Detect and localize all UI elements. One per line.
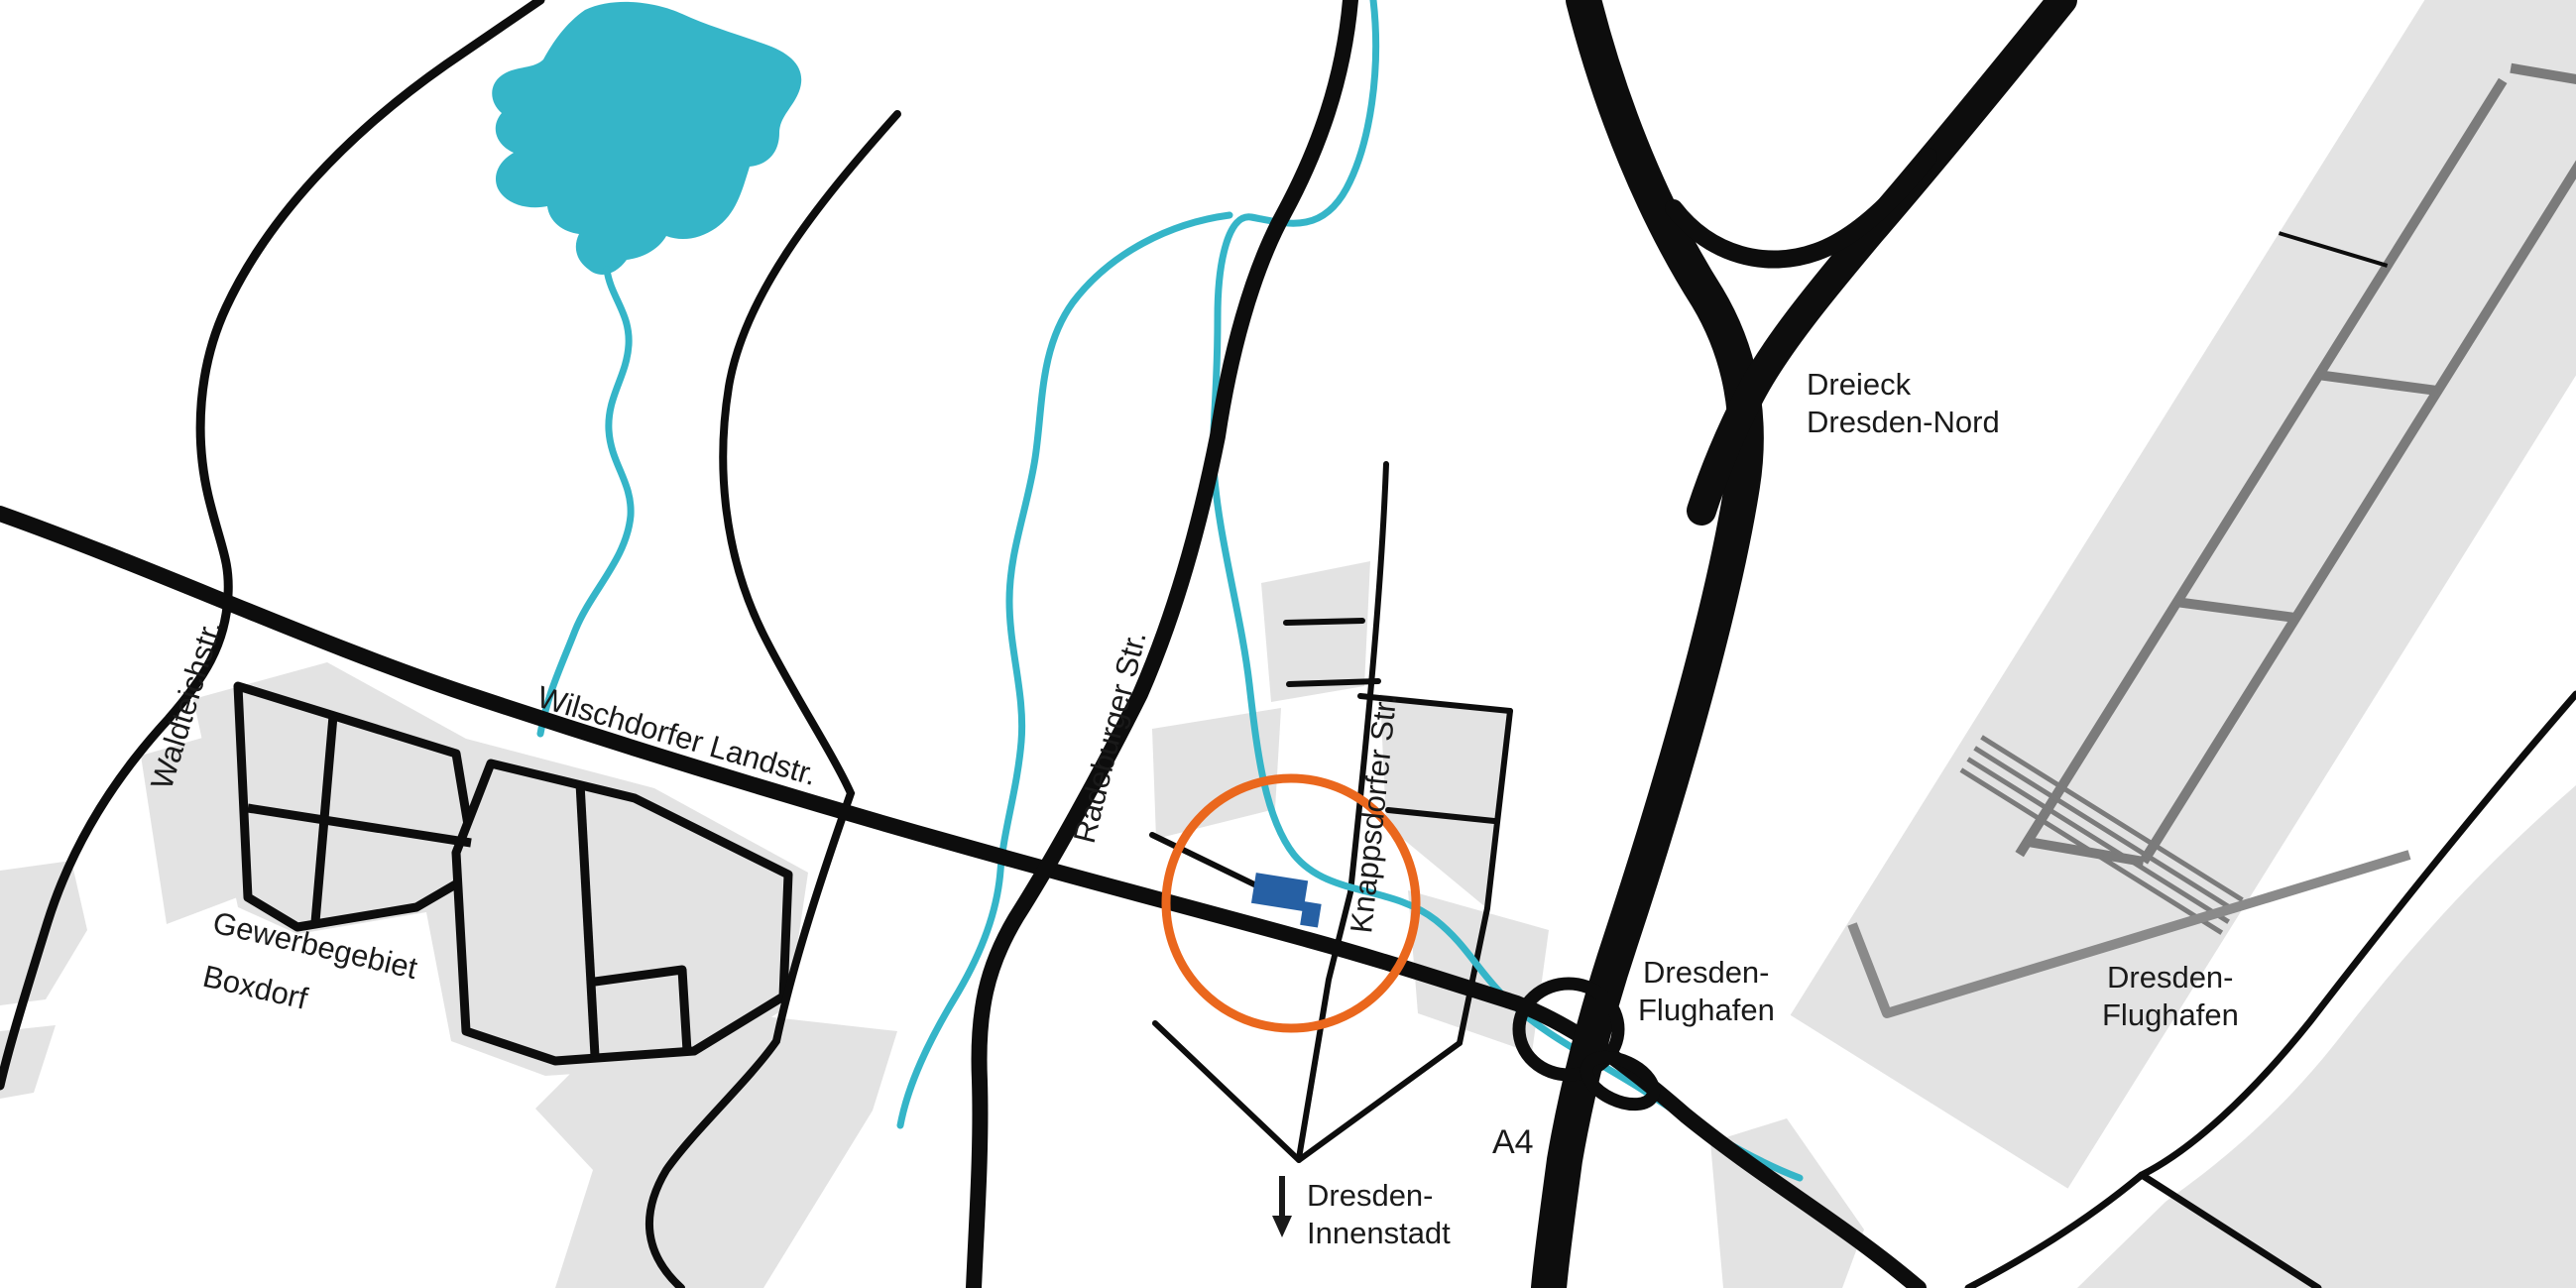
village-cross-street-7 <box>1155 1023 1299 1160</box>
label-flughafen-east-line2: Flughafen <box>2102 997 2239 1032</box>
label-innenstadt-line2: Innenstadt <box>1307 1216 1451 1250</box>
label-innenstadt-line1: Dresden- <box>1307 1178 1434 1213</box>
village-cross-street-1 <box>1286 621 1362 623</box>
label-dreieck-line1: Dreieck <box>1807 367 1912 402</box>
down-arrow-icon <box>1272 1176 1292 1237</box>
label-radeburger-str: Radeburger Str. <box>1067 628 1153 847</box>
dreieck-connector-ramp <box>1674 157 1929 260</box>
boxdorf-block-west <box>238 686 476 927</box>
major-roads <box>0 0 2062 1288</box>
dresden-area-map: Waldteichstr. Wilschdorfer Landstr. Gewe… <box>0 0 2576 1288</box>
village-cross-street-8 <box>1299 1043 1460 1160</box>
building-main <box>1251 873 1308 911</box>
label-boxdorf: Boxdorf <box>199 959 310 1016</box>
village-cross-street-2 <box>1289 681 1378 684</box>
label-flughafen-west-line1: Dresden- <box>1643 955 1770 990</box>
label-a4: A4 <box>1492 1123 1534 1161</box>
building-annex <box>1300 901 1322 928</box>
label-flughafen-west-line2: Flughafen <box>1638 993 1775 1027</box>
label-flughafen-east-line1: Dresden- <box>2107 960 2234 995</box>
stream-west-branch <box>900 215 1229 1125</box>
stream-lake-outlet <box>540 270 631 734</box>
map-canvas: Waldteichstr. Wilschdorfer Landstr. Gewe… <box>0 0 2576 1288</box>
label-dreieck-line2: Dresden-Nord <box>1807 405 2000 439</box>
lake <box>492 2 801 275</box>
boxdorf-block-east <box>456 763 788 1061</box>
